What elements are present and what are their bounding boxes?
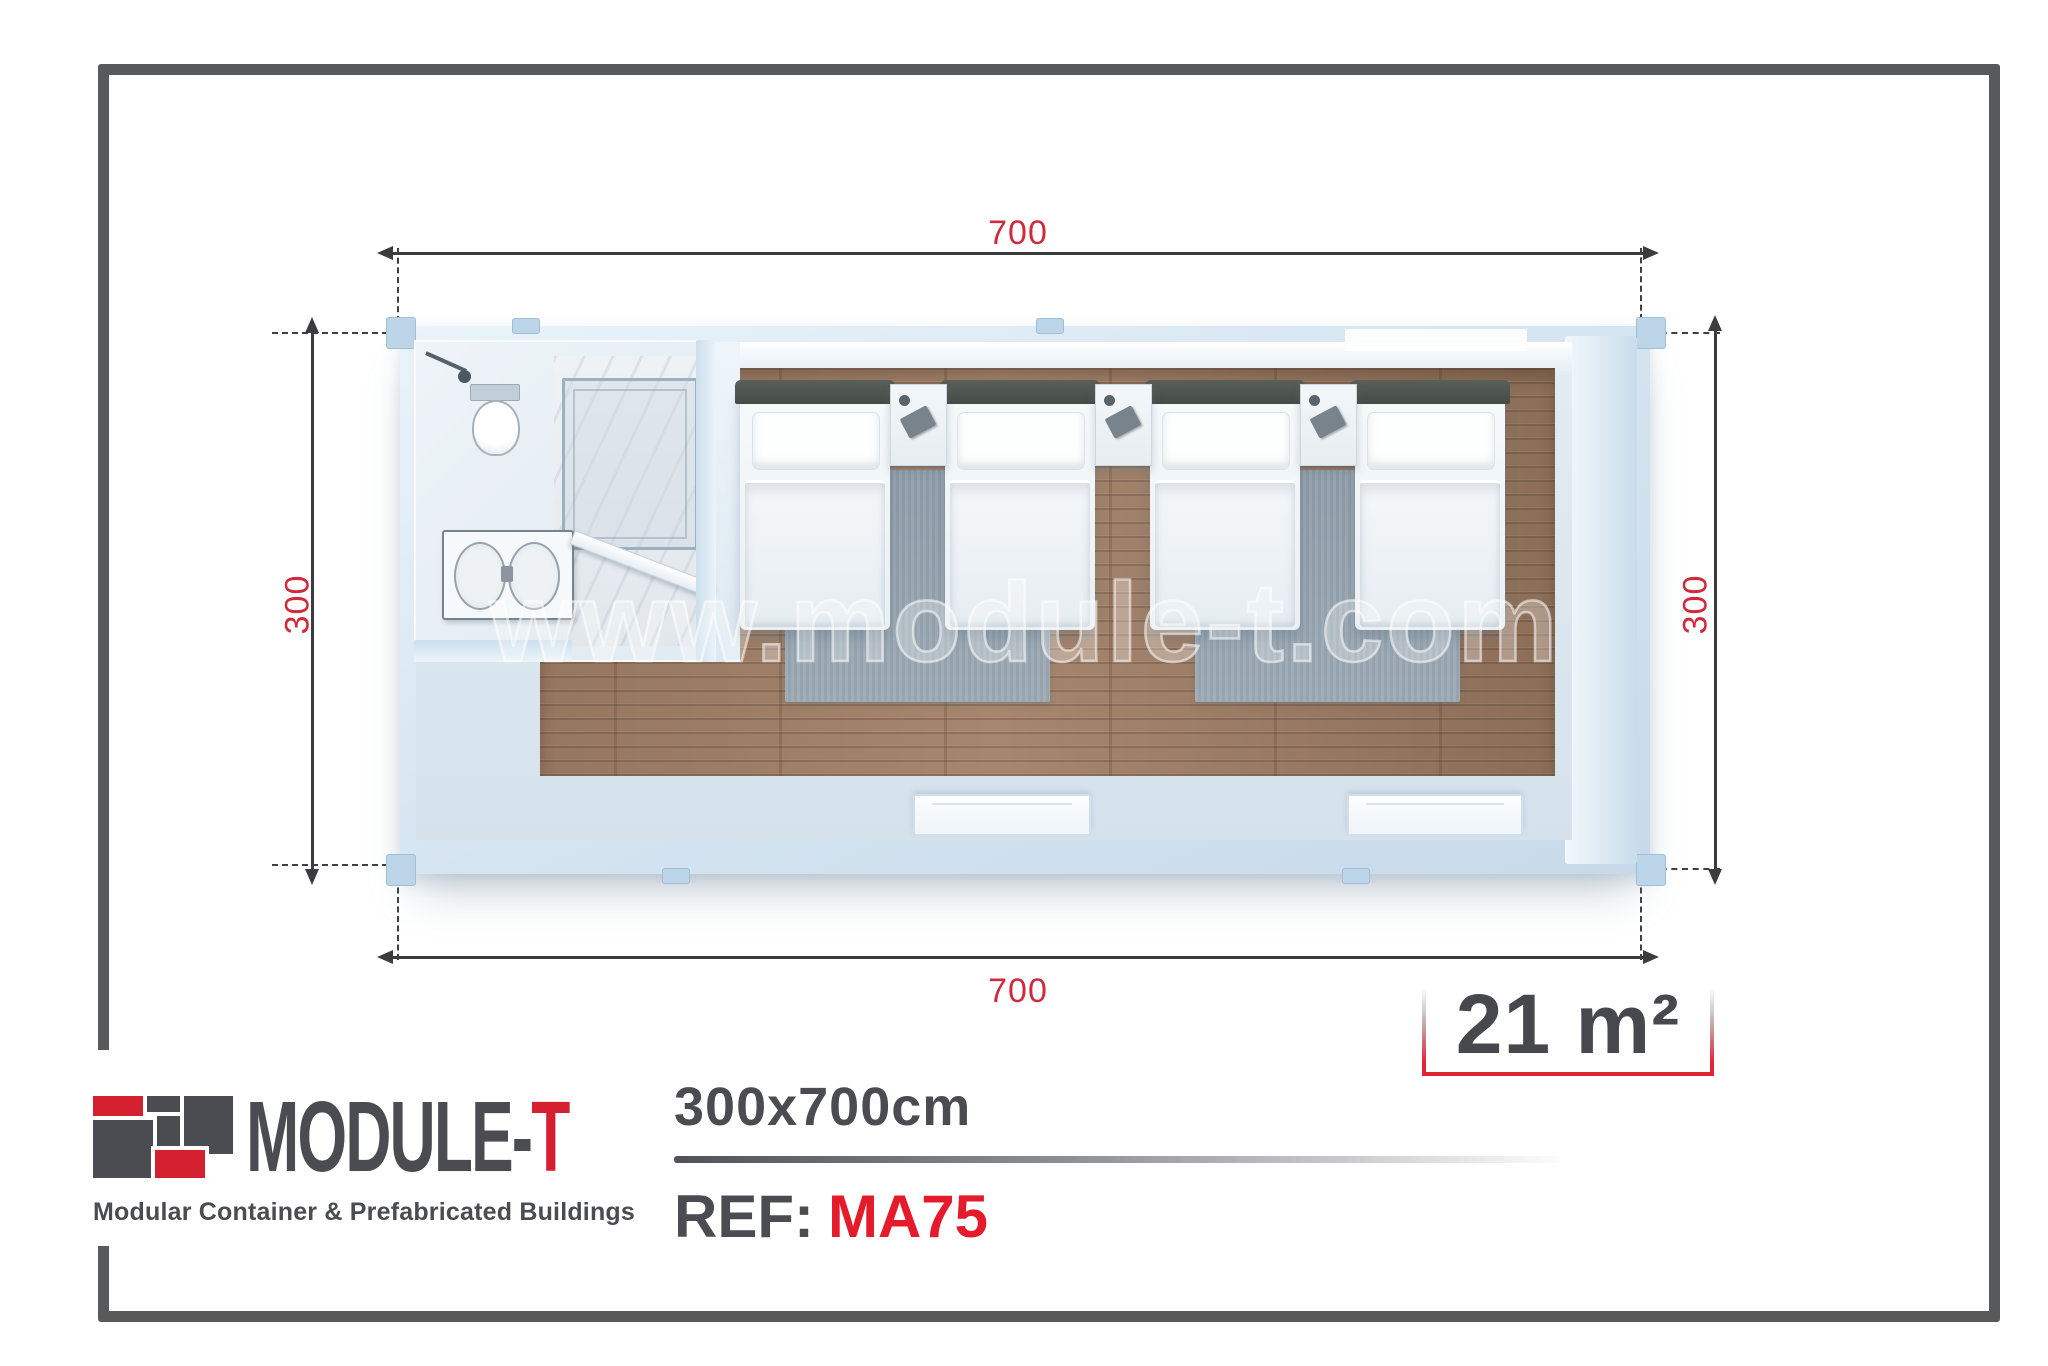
bed-duvet: [950, 480, 1090, 627]
corner-fitting: [1636, 317, 1666, 349]
ref-value: MA75: [828, 1183, 988, 1250]
corner-fitting: [386, 854, 416, 886]
dimension-label-right: 300: [1677, 545, 1716, 665]
bed-duvet: [1155, 480, 1295, 627]
arrow-up-icon: [305, 317, 319, 333]
arrow-down-icon: [1708, 869, 1722, 885]
extension-line: [1640, 248, 1642, 320]
arrow-right-icon: [1643, 246, 1659, 260]
roof-fitting: [1036, 318, 1064, 334]
nightstand: [890, 384, 947, 466]
base-fitting: [662, 868, 690, 884]
bed: [1150, 384, 1300, 630]
shower: [562, 378, 698, 550]
bed-pillow: [1162, 412, 1290, 470]
nightstand: [1300, 384, 1357, 466]
dimension-line-top: [392, 252, 1644, 255]
book-icon: [900, 405, 937, 439]
dimension-label-left: 300: [279, 545, 318, 665]
bed-headboard: [1350, 380, 1510, 404]
shower-head-icon: [458, 370, 471, 383]
reference: REF:MA75: [674, 1182, 988, 1251]
corner-fitting: [1636, 854, 1666, 886]
floor-plan: www.module-t.com: [400, 326, 1650, 874]
brand-logo-icon: [93, 1092, 235, 1184]
size-label: 300x700cm: [674, 1076, 971, 1138]
arrow-down-icon: [305, 869, 319, 885]
spec-divider: [674, 1156, 1560, 1163]
sink-basin: [508, 542, 560, 610]
brand-name-accent: T: [531, 1081, 568, 1193]
sink-basin: [454, 542, 506, 610]
area-badge: 21 m²: [1422, 988, 1714, 1076]
sink-counter: [442, 530, 574, 620]
bed: [945, 384, 1095, 630]
window: [913, 794, 1091, 836]
bed-headboard: [735, 380, 895, 404]
logo-tile: [184, 1096, 233, 1154]
window: [1347, 794, 1523, 836]
bathroom: [414, 340, 714, 662]
arrow-right-icon: [1643, 950, 1659, 964]
toilet: [472, 400, 520, 456]
bathroom-partition-wall: [414, 640, 572, 662]
window-sill: [1345, 329, 1527, 351]
nightstand: [1095, 384, 1152, 466]
bed-headboard: [940, 380, 1100, 404]
dimension-line-bottom: [392, 956, 1644, 959]
extension-line: [272, 864, 398, 866]
roof-fitting: [512, 318, 540, 334]
bed-pillow: [957, 412, 1085, 470]
arrow-up-icon: [1708, 315, 1722, 331]
cup-icon: [1104, 395, 1115, 406]
area-value: 21 m²: [1422, 976, 1714, 1073]
faucet-icon: [501, 566, 513, 582]
bed: [740, 384, 890, 630]
shower-arm-icon: [425, 351, 467, 373]
brand-name: MODULE-T: [246, 1086, 568, 1188]
cup-icon: [899, 395, 910, 406]
extension-line: [1640, 878, 1642, 960]
logo-tile: [147, 1096, 180, 1112]
book-icon: [1310, 405, 1347, 439]
brand-tagline: Modular Container & Prefabricated Buildi…: [93, 1198, 693, 1227]
cup-icon: [1309, 395, 1320, 406]
base-fitting: [1342, 868, 1370, 884]
bed: [1355, 384, 1505, 630]
logo-tile: [155, 1150, 205, 1178]
book-icon: [1105, 405, 1142, 439]
page: { "dimensions": { "top_cm": "700", "bott…: [0, 0, 2048, 1366]
logo-tile: [93, 1120, 153, 1178]
toilet-tank: [470, 384, 520, 401]
extension-line: [397, 248, 399, 322]
arrow-left-icon: [377, 950, 393, 964]
arrow-left-icon: [377, 246, 393, 260]
ref-label: REF:: [674, 1183, 814, 1250]
corner-fitting: [386, 317, 416, 349]
extension-line: [397, 878, 399, 960]
bed-duvet: [745, 480, 885, 627]
right-wall-face: [1565, 336, 1637, 864]
bed-pillow: [1367, 412, 1495, 470]
logo-tile: [157, 1116, 180, 1146]
brand-name-main: MODULE-: [246, 1081, 531, 1193]
dimension-label-top: 700: [392, 214, 1644, 253]
bathroom-partition-wall: [696, 340, 716, 662]
bed-headboard: [1145, 380, 1305, 404]
bed-duvet: [1360, 480, 1500, 627]
logo-tile: [93, 1096, 143, 1116]
extension-line: [272, 332, 398, 334]
bed-pillow: [752, 412, 880, 470]
